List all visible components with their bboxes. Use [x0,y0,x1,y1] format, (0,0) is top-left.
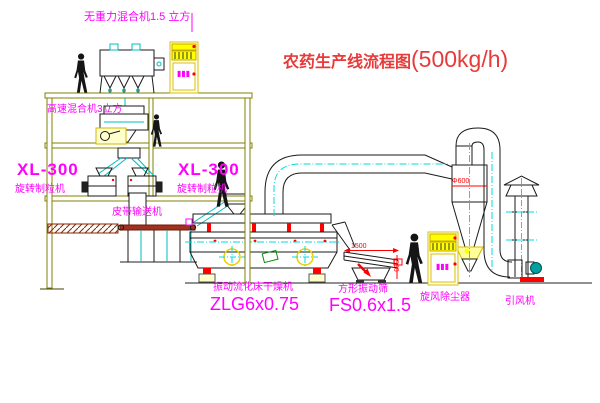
cabinet-marking: ▮▮▮ [177,70,190,78]
fan-base [520,277,544,282]
fluid-bed-dryer [185,190,340,283]
label-high-speed-mixer: 高速混合机3立方 [47,105,123,115]
exhaust-pipe [265,155,452,216]
building-column [245,98,250,283]
belt-conveyor [48,224,196,262]
label-dryer-model: ZLG6x0.75 [210,295,299,313]
dimension-sieve-length: 1500 [351,243,367,250]
label-fan: 引风机 [505,297,535,307]
granulator-right [128,168,162,196]
title-text: 农药生产线流程图 [283,54,411,71]
label-granulator-right-model: XL-300 [178,161,240,178]
label-dryer-name: 振动流化床干燥机 [213,283,293,293]
label-granulator-left-model: XL-300 [17,161,79,178]
label-sieve-model: FS0.6x1.5 [329,296,411,314]
dimension-lines [346,251,397,280]
indicator-light [453,236,456,239]
indicator-light [453,262,456,265]
fan-motor [531,263,542,274]
worker-figure [74,53,88,92]
cabinet-marking: ▮▮▮ [436,263,449,271]
title-capacity: (500kg/h) [411,46,508,72]
label-granulator-right-name: 旋转制粒机 [177,185,227,195]
label-sieve-name: 方形振动筛 [338,285,388,295]
dryer-feet [199,268,325,282]
dryer-top-ports [207,223,324,232]
induced-draft-fan [508,260,544,282]
granulator-left [82,168,116,196]
label-cyclone: 旋风除尘器 [420,293,470,303]
cyclone-dust-collector [452,128,500,277]
label-belt-conveyor: 皮带输送机 [112,208,162,218]
indicator-light [192,72,195,75]
diagram-title: 农药生产线流程图(500kg/h) [283,46,508,73]
label-gravity-free-mixer: 无重力混合机1.5 立方 [84,12,190,23]
control-cabinet-bottom [428,232,458,285]
label-granulator-left-name: 旋转制粒机 [15,185,65,195]
dimension-cyclone: Φ600 [452,178,469,185]
cad-drawing: 农药生产线流程图(500kg/h) 无重力混合机1.5 立方 高速混合机3立方 … [0,0,600,403]
worker-figure [406,234,423,283]
vibrating-sieve [332,222,402,283]
fan-inlet-pipe [484,150,512,277]
indicator-light [192,45,195,48]
control-cabinet-top [170,42,198,93]
dimension-sieve-height: 550 [392,260,399,272]
